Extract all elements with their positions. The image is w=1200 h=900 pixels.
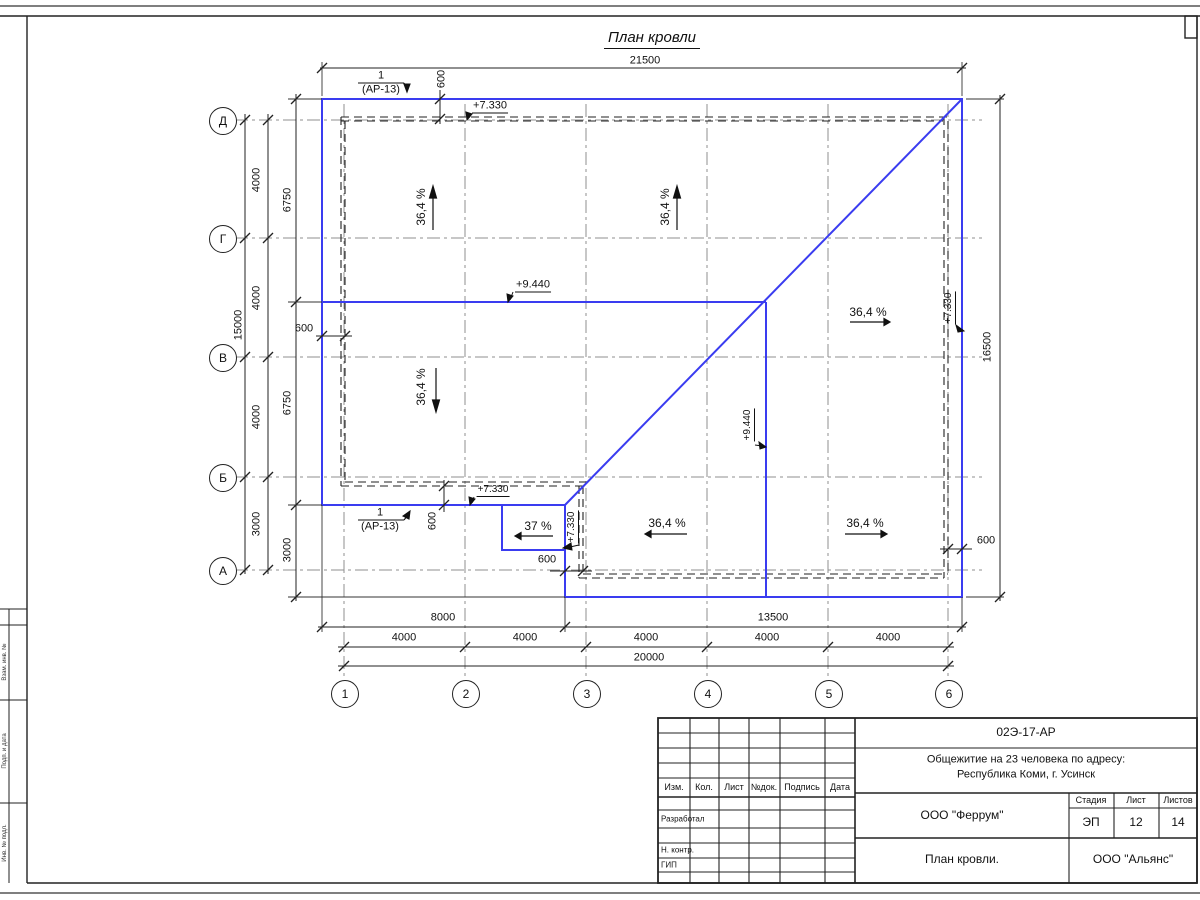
tb-col-kol: Кол. <box>695 782 713 792</box>
slope-label: 36,4 % <box>659 188 671 225</box>
dim-label: 600 <box>538 555 556 566</box>
elevation-mark: +9.440 <box>515 280 551 293</box>
axis-bubble-col-4: 4 <box>694 680 722 708</box>
dim-label: 6750 <box>283 188 294 212</box>
axis-bubble-col-2: 2 <box>452 680 480 708</box>
doc-number: 02Э-17-АР <box>996 726 1055 740</box>
dim-label: 20000 <box>634 653 665 664</box>
margin-label-inv: Инв. № подл. <box>2 824 8 861</box>
tb-col-data: Дата <box>830 782 850 792</box>
elevation-mark: +9.440 <box>743 409 755 442</box>
dim-label: 4000 <box>392 633 416 644</box>
dim-label: 600 <box>977 536 995 547</box>
axis-bubble-row-Б: Б <box>209 464 237 492</box>
stage-label: Стадия <box>1076 795 1107 805</box>
detail-callout: (АР-13) <box>361 522 399 533</box>
dim-label: 4000 <box>876 633 900 644</box>
tb-col-izm: Изм. <box>664 782 683 792</box>
dim-label: 4000 <box>513 633 537 644</box>
axis-bubble-row-Д: Д <box>209 107 237 135</box>
axis-bubble-row-А: А <box>209 557 237 585</box>
dimension-ticks <box>240 63 1005 671</box>
elevation-mark: +7.330 <box>477 485 510 497</box>
project-name-line2: Республика Коми, г. Усинск <box>957 769 1095 782</box>
tb-col-ndok: №док. <box>751 782 777 792</box>
tb-row-nkontr: Н. контр. <box>661 845 694 854</box>
dim-label: 4000 <box>755 633 779 644</box>
dim-label: 4000 <box>252 405 263 429</box>
axis-bubble-col-1: 1 <box>331 680 359 708</box>
elevation-mark: +7.330 <box>567 511 579 544</box>
extension-lines <box>288 62 1004 632</box>
axis-bubble-col-6: 6 <box>935 680 963 708</box>
project-name-line1: Общежитие на 23 человека по адресу: <box>927 754 1125 767</box>
dim-label: 4000 <box>634 633 658 644</box>
dim-label: 15000 <box>234 310 245 341</box>
drawing-name: План кровли. <box>925 853 999 867</box>
axis-bubble-col-5: 5 <box>815 680 843 708</box>
corner-stamp-box <box>1185 16 1197 38</box>
contractor-company: ООО "Альянс" <box>1093 853 1173 867</box>
elevation-mark: +7.330 <box>472 101 508 114</box>
slope-label: 36,4 % <box>846 517 883 529</box>
slope-label: 36,4 % <box>415 368 427 405</box>
dim-label: 16500 <box>983 332 994 363</box>
dim-label: 3000 <box>283 538 294 562</box>
tb-col-podpis: Подпись <box>784 782 820 792</box>
margin-label-podp: Подп. и дата <box>2 733 8 768</box>
tb-col-list: Лист <box>724 782 744 792</box>
dim-label: 600 <box>437 70 448 88</box>
dim-label: 600 <box>295 324 313 335</box>
detail-callout: 1 <box>377 508 383 519</box>
dim-label: 4000 <box>252 168 263 192</box>
axis-bubble-col-3: 3 <box>573 680 601 708</box>
dim-label: 21500 <box>630 56 661 67</box>
sheets-total: 14 <box>1171 816 1184 830</box>
blueprint-page: План кровли ДГВБА12345621500600+7.3301(А… <box>0 0 1200 900</box>
axis-grid <box>235 104 982 680</box>
dim-label: 8000 <box>431 613 455 624</box>
parapet-dashed-lines <box>341 117 948 578</box>
elevation-mark: +7.330 <box>944 292 956 325</box>
tb-row-gip: ГИП <box>661 860 677 869</box>
detail-callout: (АР-13) <box>362 85 400 96</box>
elevation-leaders <box>466 112 964 550</box>
dim-label: 600 <box>428 512 439 530</box>
detail-callout: 1 <box>378 71 384 82</box>
dim-label: 4000 <box>252 286 263 310</box>
sheet-number: 12 <box>1129 816 1142 830</box>
slope-label: 37 % <box>524 520 551 532</box>
dimension-lines <box>245 68 1000 666</box>
designer-company: ООО "Феррум" <box>921 809 1004 823</box>
dim-label: 3000 <box>252 512 263 536</box>
axis-bubble-row-Г: Г <box>209 225 237 253</box>
dim-label: 6750 <box>283 391 294 415</box>
slope-label: 36,4 % <box>648 517 685 529</box>
slope-label: 36,4 % <box>415 188 427 225</box>
dim-label: 13500 <box>758 613 789 624</box>
sheets-label: Листов <box>1163 795 1192 805</box>
slope-label: 36,4 % <box>849 306 886 318</box>
margin-label-vzam: Взам. инв. № <box>2 643 8 680</box>
drawing-title: План кровли <box>604 29 700 49</box>
stage-value: ЭП <box>1082 816 1099 830</box>
axis-bubble-row-В: В <box>209 344 237 372</box>
tb-row-razrabotal: Разработал <box>661 814 705 823</box>
sheet-label: Лист <box>1126 795 1146 805</box>
